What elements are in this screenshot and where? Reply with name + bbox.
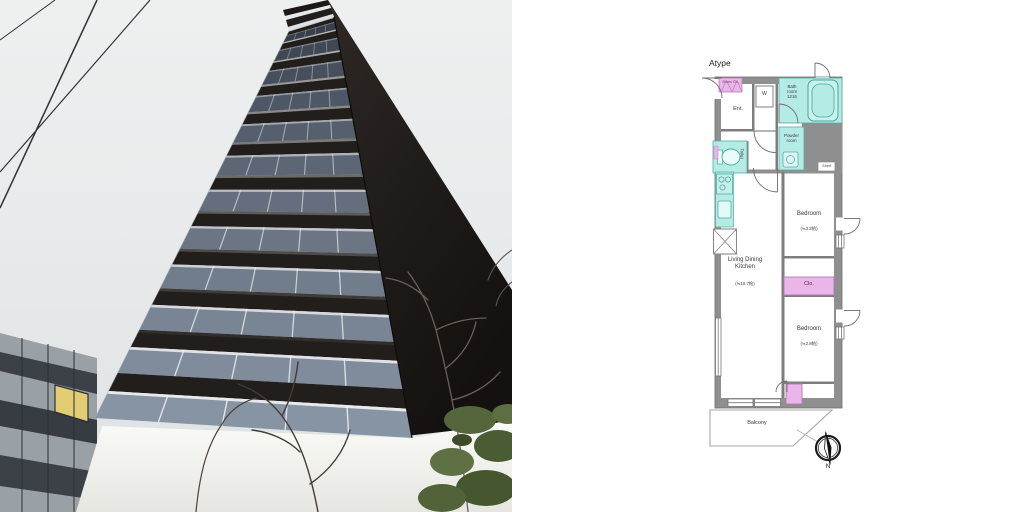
washer-label: W — [756, 92, 773, 98]
property-listing-image: Atype Shoes Clo. Ent. W Bath room 1216 P… — [0, 0, 1024, 512]
toilet-bowl — [722, 149, 740, 165]
bathroom-label: Bath room 1216 — [776, 84, 808, 100]
compass — [816, 431, 840, 465]
balcony-label: Balcony — [727, 420, 787, 426]
compass-north-label: N — [822, 463, 834, 471]
bedroom2-size-label: (≒2.8帖) — [784, 341, 834, 346]
floor-plan-drawing — [512, 0, 1024, 512]
vanity-sink — [783, 152, 798, 167]
small-closet — [786, 384, 802, 404]
bedroom2-door-arc — [844, 311, 860, 327]
floor-plan-panel: Atype Shoes Clo. Ent. W Bath room 1216 P… — [512, 0, 1024, 512]
bath-window-arc — [815, 63, 830, 78]
bedroom1-door-arc — [844, 219, 860, 235]
bedroom1-label: Bedroom — [784, 211, 834, 218]
neighbor-building — [0, 333, 97, 512]
ldk-size-label: (≒10.7帖) — [714, 281, 776, 286]
plan-type-label: Atype — [709, 58, 759, 68]
closet-label: Clo. — [784, 281, 834, 287]
balcony — [710, 410, 832, 446]
powder-room-label: Powder room — [777, 133, 806, 143]
kitchen-sink — [718, 201, 731, 218]
stove — [717, 174, 733, 194]
toilet-cabinet — [714, 146, 718, 159]
ldk-label: Living Dining Kitchen — [714, 257, 776, 271]
bedroom2-label: Bedroom — [784, 326, 834, 333]
balcony-outline — [710, 410, 832, 446]
toilet-label: Toilet — [739, 141, 744, 167]
shelf-label: Shelf — [818, 164, 835, 168]
shoes-cabinet-label: Shoes Clo. — [718, 80, 743, 84]
entrance-label: Ent. — [722, 106, 754, 112]
bedroom1-size-label: (≒3.2帖) — [784, 226, 834, 231]
building-photo — [0, 0, 512, 512]
